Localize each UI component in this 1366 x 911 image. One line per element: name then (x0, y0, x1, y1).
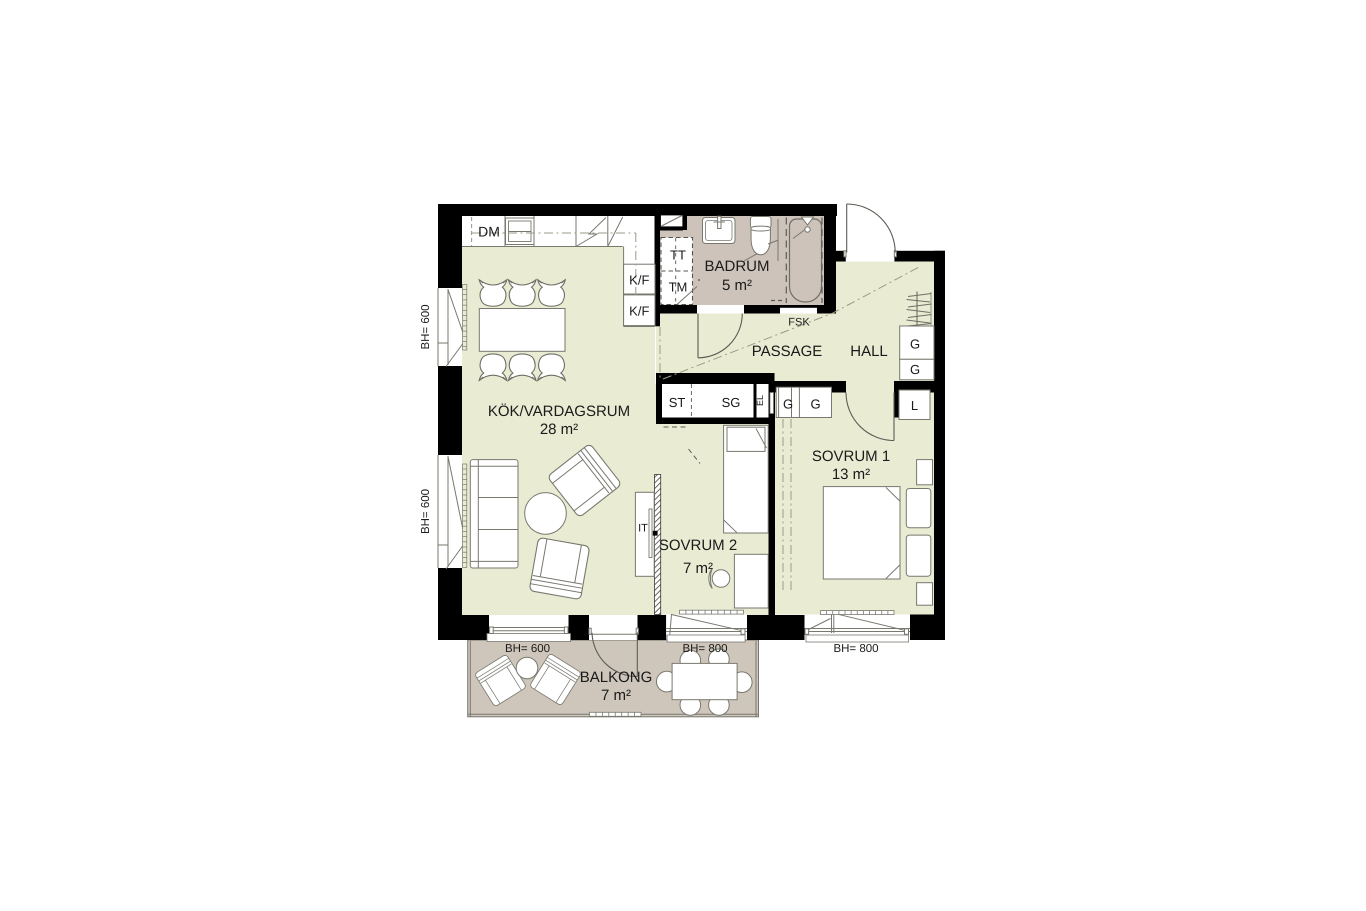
svg-text:BH= 600: BH= 600 (505, 643, 550, 655)
svg-text:K/F: K/F (629, 273, 649, 288)
svg-text:FSK: FSK (788, 317, 810, 329)
svg-text:G: G (810, 397, 820, 412)
svg-text:G: G (910, 337, 920, 352)
svg-text:BH= 600: BH= 600 (420, 489, 432, 534)
svg-text:ST: ST (669, 395, 686, 410)
svg-text:BALKONG: BALKONG (580, 669, 653, 686)
svg-text:IT: IT (638, 523, 648, 535)
svg-text:BADRUM: BADRUM (704, 258, 769, 275)
svg-text:SOVRUM 1: SOVRUM 1 (812, 448, 890, 465)
svg-text:DM: DM (478, 224, 500, 240)
svg-text:L: L (911, 398, 918, 413)
svg-text:BH= 600: BH= 600 (420, 304, 432, 349)
svg-text:7 m²: 7 m² (601, 687, 631, 704)
svg-text:BH= 800: BH= 800 (833, 643, 878, 655)
svg-text:SG: SG (722, 395, 741, 410)
svg-text:TT: TT (670, 248, 686, 263)
svg-text:HALL: HALL (850, 343, 888, 360)
svg-text:G: G (783, 397, 793, 412)
svg-text:PASSAGE: PASSAGE (752, 343, 823, 360)
svg-text:28 m²: 28 m² (540, 421, 578, 438)
svg-text:13 m²: 13 m² (832, 466, 870, 483)
svg-text:EL: EL (755, 395, 765, 406)
svg-text:KÖK/VARDAGSRUM: KÖK/VARDAGSRUM (488, 403, 630, 420)
svg-text:5 m²: 5 m² (722, 277, 752, 294)
svg-text:7 m²: 7 m² (683, 560, 713, 577)
svg-text:SOVRUM 2: SOVRUM 2 (659, 537, 737, 554)
svg-text:K/F: K/F (629, 304, 649, 319)
svg-text:TM: TM (669, 280, 688, 295)
svg-text:G: G (910, 362, 920, 377)
svg-text:BH= 800: BH= 800 (682, 643, 727, 655)
